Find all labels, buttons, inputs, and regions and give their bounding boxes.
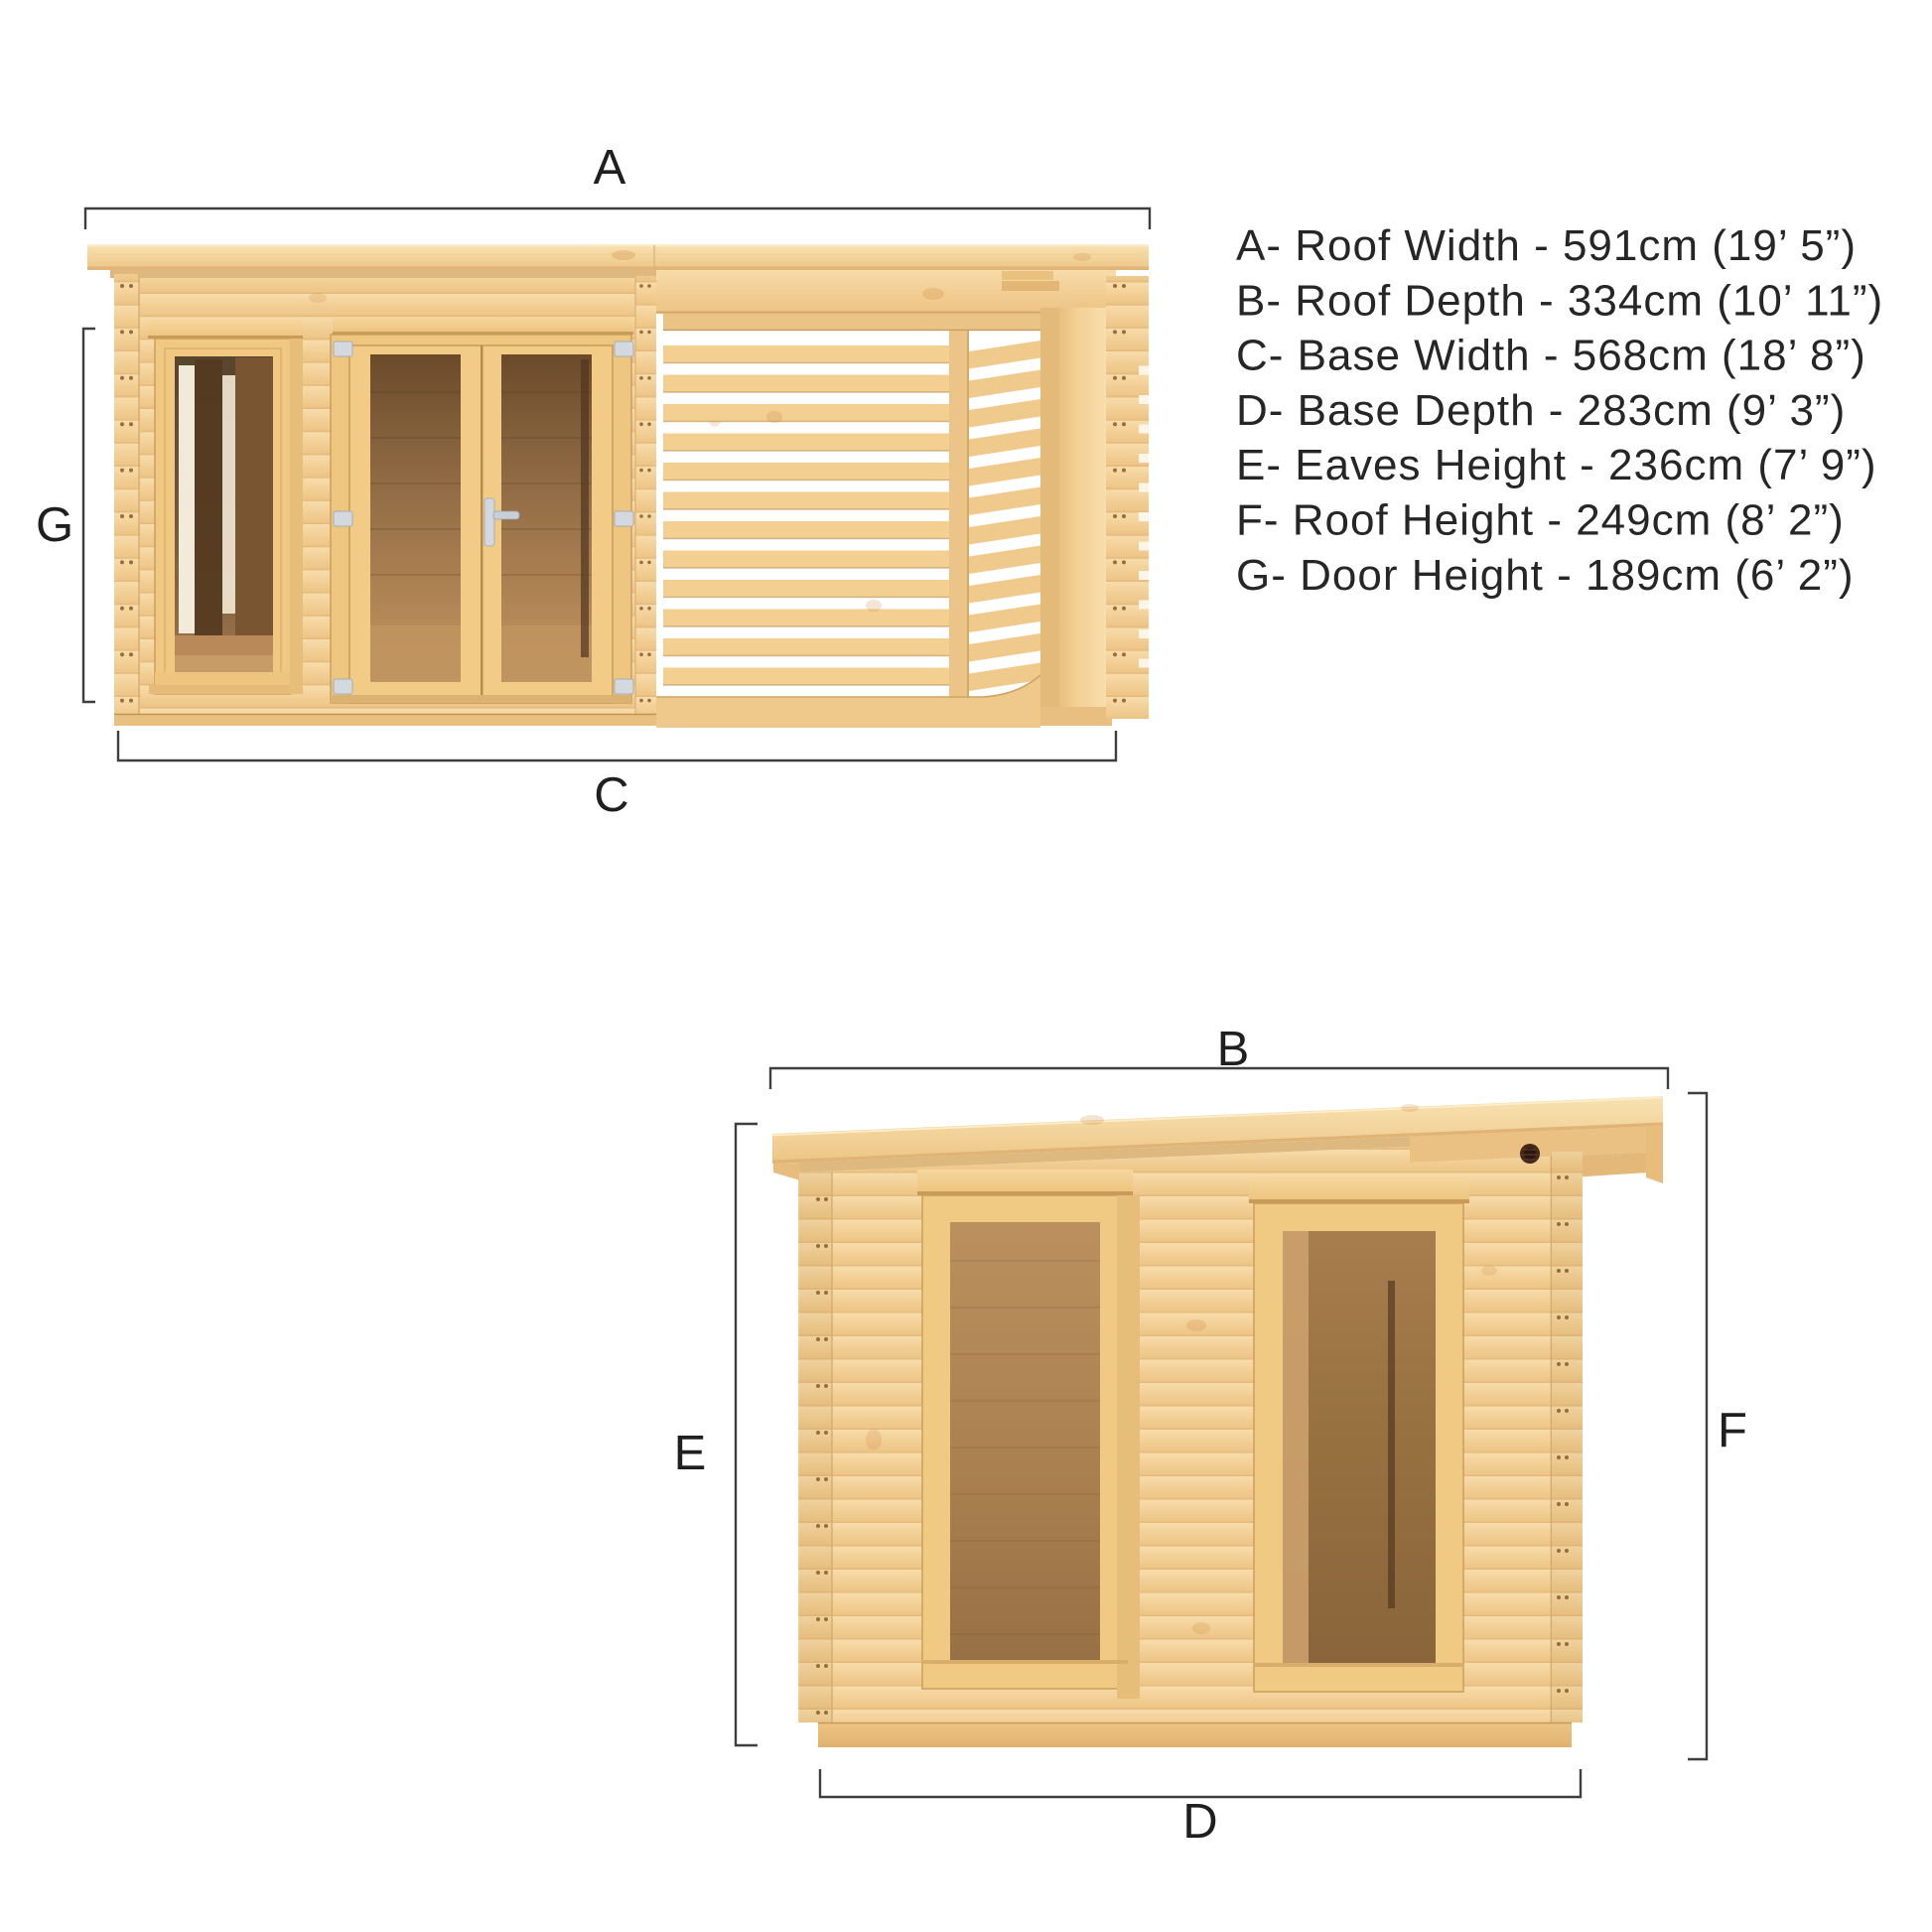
svg-text:C- Base Width - 568cm (18’ 8”): C- Base Width - 568cm (18’ 8”) (1236, 332, 1866, 380)
svg-text:B: B (1217, 1023, 1250, 1076)
svg-text:A- Roof Width - 591cm (19’ 5”): A- Roof Width - 591cm (19’ 5”) (1236, 221, 1857, 270)
svg-text:A: A (594, 141, 626, 195)
svg-text:D: D (1182, 1795, 1217, 1849)
svg-text:G: G (36, 498, 73, 552)
svg-text:E: E (674, 1427, 707, 1480)
svg-text:C: C (594, 768, 628, 822)
svg-text:D- Base Depth - 283cm (9’ 3”): D- Base Depth - 283cm (9’ 3”) (1236, 386, 1846, 435)
svg-text:F- Roof Height - 249cm (8’ 2”): F- Roof Height - 249cm (8’ 2”) (1236, 496, 1845, 545)
svg-text:F: F (1718, 1404, 1747, 1457)
svg-text:B- Roof Depth - 334cm (10’ 11”: B- Roof Depth - 334cm (10’ 11”) (1236, 276, 1883, 325)
svg-text:G- Door Height - 189cm (6’ 2”): G- Door Height - 189cm (6’ 2”) (1236, 551, 1855, 600)
svg-text:E- Eaves Height - 236cm (7’ 9”: E- Eaves Height - 236cm (7’ 9”) (1236, 441, 1877, 489)
